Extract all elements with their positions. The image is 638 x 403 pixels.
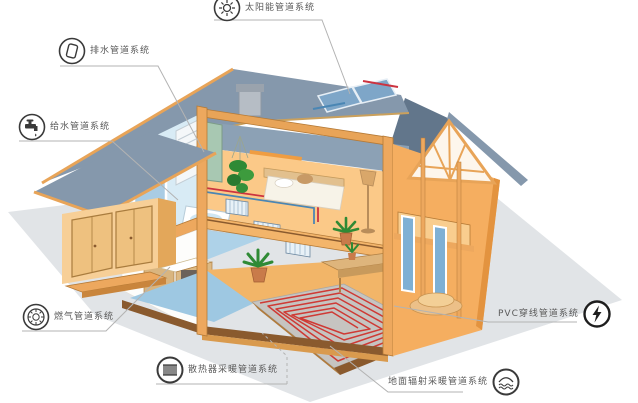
- callout-drainage: 排水管道系统: [58, 37, 150, 65]
- gas-meter-icon: [22, 303, 50, 331]
- home-piping-systems-diagram: 排水管道系统 太阳能管道系统 给水管道系统: [0, 0, 638, 403]
- lightning-icon: [583, 300, 611, 328]
- callout-label: 排水管道系统: [90, 47, 150, 56]
- callout-gas: 燃气管道系统: [22, 303, 114, 331]
- callout-label: 散热器采暖管道系统: [188, 366, 278, 375]
- callout-radiator-heating: 散热器采暖管道系统: [156, 356, 278, 384]
- callout-label: 地面辐射采暖管道系统: [388, 378, 488, 387]
- window-tall-right: [434, 226, 446, 302]
- callout-label: 给水管道系统: [50, 123, 110, 132]
- drain-pipe-icon: [58, 37, 86, 65]
- callout-solar: 太阳能管道系统: [213, 0, 315, 22]
- chimney: [236, 84, 264, 116]
- callout-label: PVC穿线管道系统: [498, 310, 579, 319]
- radiator-icon: [156, 356, 184, 384]
- callout-label: 燃气管道系统: [54, 313, 114, 322]
- callout-water-supply: 给水管道系统: [18, 113, 110, 141]
- callout-label: 太阳能管道系统: [245, 4, 315, 13]
- sun-icon: [213, 0, 241, 22]
- window-tall-left: [402, 216, 414, 292]
- floor-heating-icon: [492, 368, 520, 396]
- callout-floor-radiant-heating: 地面辐射采暖管道系统: [388, 368, 520, 396]
- faucet-icon: [18, 113, 46, 141]
- callout-pvc-conduit: PVC穿线管道系统: [498, 300, 611, 328]
